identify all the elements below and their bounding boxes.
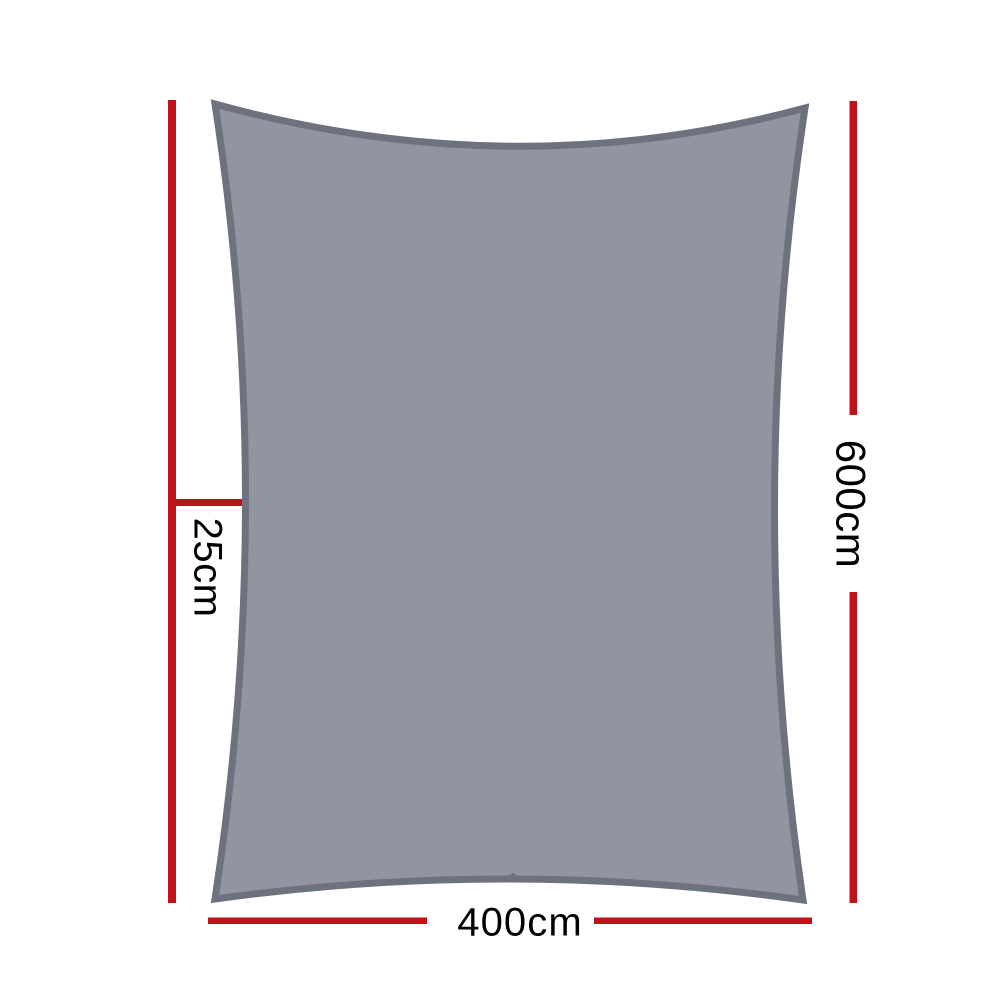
svg-text:400cm: 400cm [457, 901, 583, 945]
svg-text:600cm: 600cm [828, 440, 875, 569]
svg-text:25cm: 25cm [186, 518, 230, 618]
